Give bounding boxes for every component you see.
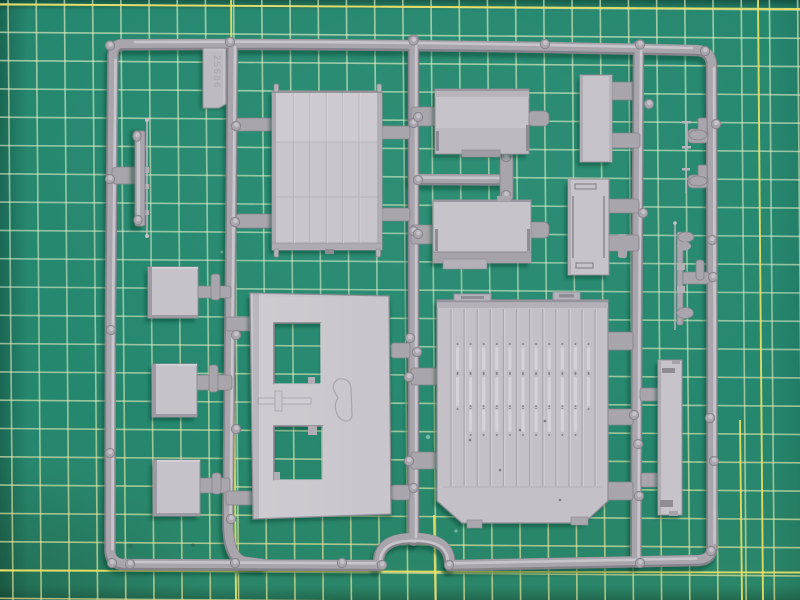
svg-text:25686: 25686 [211,55,222,89]
